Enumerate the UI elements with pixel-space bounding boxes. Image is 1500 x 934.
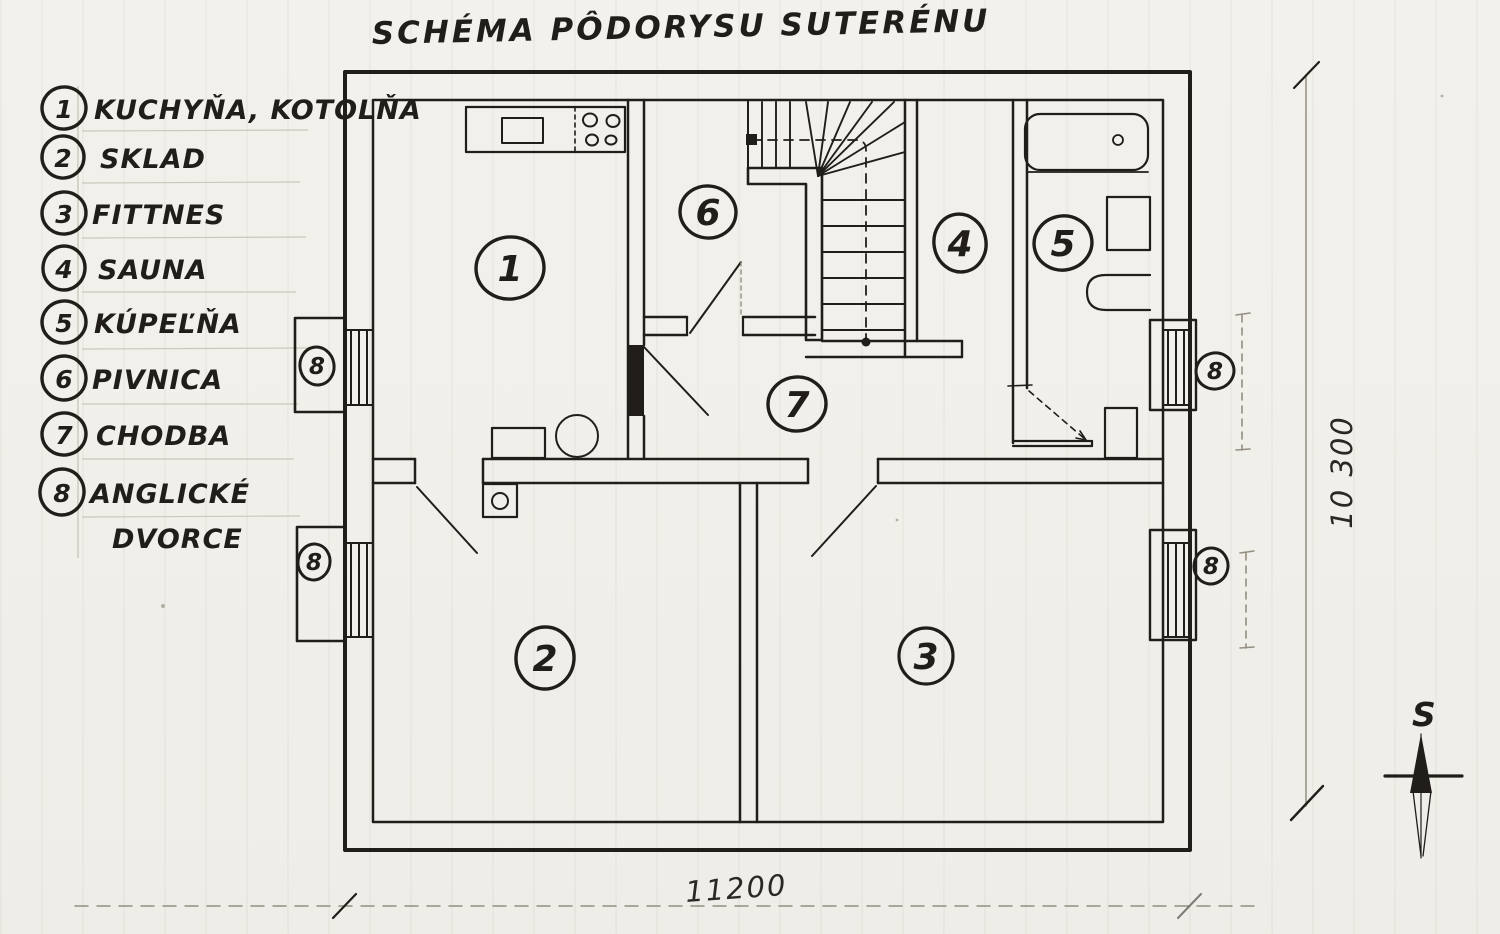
door-swing-room3 <box>812 486 876 556</box>
page-title: SCHÉMA PÔDORYSU SUTERÉNU <box>371 2 990 52</box>
legend: 1 KUCHYŇA, KOTOLŇA 2 SKLAD 3 FITTNES 4 S… <box>37 84 422 558</box>
well-marker-3: 8 <box>1207 359 1223 385</box>
bathtub <box>1025 114 1148 170</box>
wall-room4-room5 <box>1008 100 1092 446</box>
compass: S <box>1385 695 1462 858</box>
door-swing-room1 <box>644 347 708 415</box>
well-marker-2: 8 <box>306 550 322 576</box>
room-marker-4: 4 <box>946 224 972 265</box>
chimney-box-room2 <box>483 484 517 517</box>
door-swing-room5 <box>1029 391 1086 440</box>
legend-number-4: 4 <box>54 255 72 284</box>
bathroom-fixtures <box>1025 114 1150 458</box>
dimension-right: 10 300 <box>1291 62 1359 820</box>
room-marker-3: 3 <box>913 637 938 678</box>
wall-cabinet-box <box>492 428 545 458</box>
room-marker-6: 6 <box>695 193 720 234</box>
window-right-upper <box>1163 330 1190 405</box>
dimension-label-right: 10 300 <box>1325 415 1359 528</box>
walking-line-end-dot <box>862 338 871 347</box>
walking-line-start-marker <box>746 134 757 145</box>
legend-label-4: SAUNA <box>98 255 208 286</box>
legend-label-8: ANGLICKÉ <box>88 478 250 510</box>
legend-label-5: KÚPEĽŇA <box>94 308 242 340</box>
washing-machine <box>1107 197 1150 250</box>
exterior-wall-inner <box>373 100 1163 822</box>
legend-item-7: 7 CHODBA <box>40 411 231 457</box>
legend-label-7: CHODBA <box>96 421 231 452</box>
well-depth-lines <box>1236 313 1254 648</box>
legend-item-2: 2 SKLAD <box>40 134 206 180</box>
floorplan-svg: SCHÉMA PÔDORYSU SUTERÉNU 1 KUCHYŇA, KOTO… <box>0 0 1500 934</box>
window-left-upper <box>345 330 373 405</box>
stair-treads-upper <box>762 102 790 168</box>
legend-number-7: 7 <box>55 421 73 450</box>
wall-room1-east <box>628 100 708 458</box>
well-marker-1: 8 <box>309 354 325 380</box>
legend-number-6: 6 <box>55 365 72 394</box>
dimension-label-bottom: 11200 <box>684 868 788 909</box>
wall-room6-south <box>644 262 815 335</box>
room-marker-5: 5 <box>1050 224 1075 265</box>
legend-item-4: 4 SAUNA <box>40 244 207 293</box>
legend-number-3: 3 <box>55 200 72 229</box>
door-swing-room6 <box>690 262 741 333</box>
room-marker-7: 7 <box>784 385 809 426</box>
dimension-bottom: 11200 <box>75 868 1255 918</box>
stairs <box>746 100 962 357</box>
legend-item-6: 6 PIVNICA <box>40 354 223 402</box>
legend-label-6: PIVNICA <box>92 365 223 396</box>
exterior-wall-outer <box>345 72 1190 850</box>
legend-number-5: 5 <box>55 309 72 338</box>
wall-room2-room3 <box>740 483 757 822</box>
toilet <box>1105 408 1137 458</box>
room-marker-2: 2 <box>532 639 557 680</box>
middle-wall <box>373 459 1163 483</box>
legend-label-8-line2: DVORCE <box>112 524 243 555</box>
legend-label-3: FITTNES <box>92 200 225 231</box>
legend-item-1: 1 KUCHYŇA, KOTOLŇA <box>39 84 421 132</box>
door-swing-room2 <box>417 487 477 553</box>
room-marker-1: 1 <box>497 249 522 290</box>
paper-specks <box>161 95 1443 608</box>
compass-north-label: S <box>1412 695 1436 734</box>
boiler <box>556 415 598 457</box>
legend-item-8: 8 ANGLICKÉ DVORCE <box>37 466 250 555</box>
legend-number-2: 2 <box>54 144 71 173</box>
legend-item-3: 3 FITTNES <box>40 190 225 236</box>
scanned-floorplan-page: SCHÉMA PÔDORYSU SUTERÉNU 1 KUCHYŇA, KOTO… <box>0 0 1500 934</box>
kitchen-sink <box>502 118 543 143</box>
compass-south-line-b <box>1423 791 1431 856</box>
legend-number-8: 8 <box>53 479 70 508</box>
stove-burners <box>583 114 620 146</box>
room5-south-wall <box>1013 441 1092 446</box>
window-left-lower <box>345 543 373 637</box>
legend-label-2: SKLAD <box>100 144 206 175</box>
legend-number-1: 1 <box>55 95 72 124</box>
window-right-lower <box>1163 543 1190 637</box>
floor-plan: 1 2 3 4 5 6 7 8 8 8 8 <box>295 72 1254 850</box>
stair-treads-lower <box>822 200 905 330</box>
well-markers: 8 8 8 8 <box>296 344 1238 586</box>
bathtub-drain <box>1113 135 1123 145</box>
stair-bottom-wall <box>806 341 962 357</box>
flue-solid-segment <box>628 345 644 416</box>
kitchen-fixtures <box>466 107 625 458</box>
legend-item-5: 5 KÚPEĽŇA <box>40 298 242 345</box>
stair-winders <box>806 102 905 176</box>
dim-tick-bottom <box>1291 786 1323 820</box>
washbasin <box>1087 275 1150 310</box>
well-marker-4: 8 <box>1203 554 1219 580</box>
kitchen-counter <box>466 107 625 152</box>
compass-south-line-a <box>1413 791 1421 856</box>
stair-core-wall <box>748 168 822 340</box>
room-markers: 1 2 3 4 5 6 7 <box>472 182 1097 691</box>
